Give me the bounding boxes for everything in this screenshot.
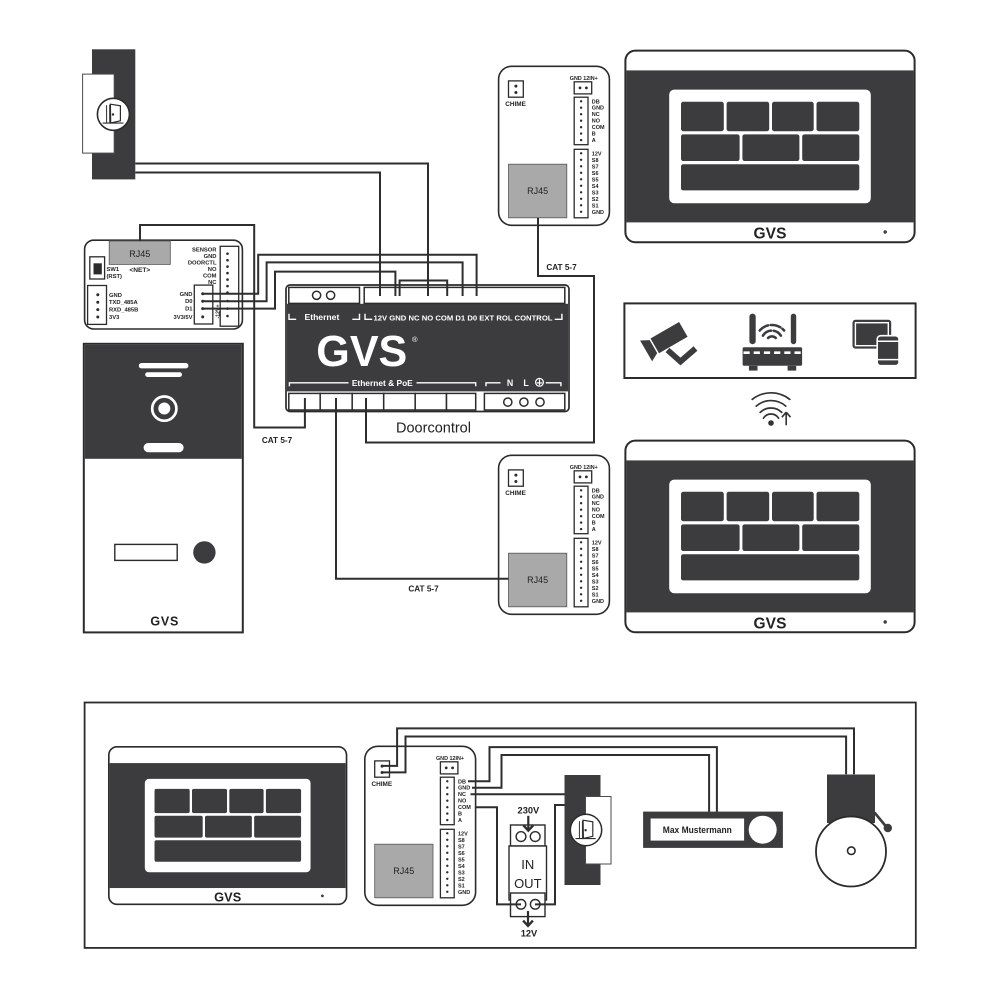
svg-text:N: N	[507, 378, 513, 388]
svg-text:®: ®	[412, 335, 418, 344]
svg-text:(RST): (RST)	[107, 274, 123, 280]
svg-text:Doorcontrol: Doorcontrol	[396, 421, 471, 437]
svg-text:12V: 12V	[521, 928, 538, 938]
svg-text:IN: IN	[521, 857, 534, 872]
svg-text:GVS: GVS	[150, 615, 178, 629]
svg-text:CAT 5-7: CAT 5-7	[262, 436, 293, 445]
svg-text:COM: COM	[203, 274, 217, 280]
svg-text:GND: GND	[204, 254, 217, 260]
svg-text:D1: D1	[185, 307, 193, 313]
svg-text:DOORCTL: DOORCTL	[188, 261, 217, 267]
svg-text:GND: GND	[109, 293, 122, 299]
svg-text:L: L	[523, 378, 529, 388]
svg-text:<NET>: <NET>	[129, 267, 150, 274]
svg-text:RXD_485B: RXD_485B	[109, 308, 138, 314]
svg-text:Max Mustermann: Max Mustermann	[663, 825, 732, 835]
svg-text:12V GND NC NO COM D1 D0 EXT RO: 12V GND NC NO COM D1 D0 EXT ROL CONTROL	[374, 313, 553, 322]
svg-text:RJ45: RJ45	[129, 249, 150, 259]
svg-text:3V3: 3V3	[109, 315, 120, 321]
svg-text:GVS: GVS	[316, 327, 407, 376]
svg-text:230V: 230V	[518, 805, 541, 815]
svg-text:SW1: SW1	[107, 267, 120, 273]
svg-text:Ethernet & PoE: Ethernet & PoE	[352, 378, 413, 388]
svg-text:NO: NO	[208, 267, 217, 273]
svg-text:OUT: OUT	[514, 876, 542, 891]
svg-text:D0: D0	[185, 299, 192, 305]
svg-text:TXD_485A: TXD_485A	[109, 300, 138, 306]
svg-text:GND: GND	[180, 292, 193, 298]
svg-text:CAT 5-7: CAT 5-7	[408, 585, 439, 594]
svg-text:Ethernet: Ethernet	[304, 312, 339, 322]
svg-text:3V3/5V: 3V3/5V	[173, 315, 192, 321]
svg-text:CAT 5-7: CAT 5-7	[546, 263, 577, 272]
svg-text:SENSOR: SENSOR	[192, 248, 217, 254]
svg-text:-12V+: -12V+	[216, 305, 222, 319]
